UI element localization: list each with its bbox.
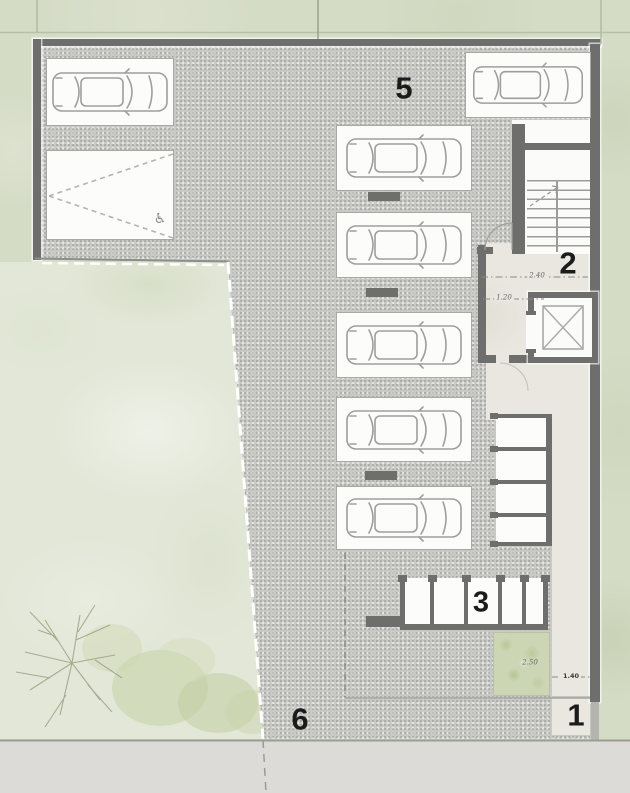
locker-tick — [490, 446, 498, 452]
parking-space — [336, 312, 472, 378]
stair-rail — [556, 180, 558, 252]
zone-label-storage: 3 — [473, 589, 489, 618]
zone-label-entry: 1 — [567, 700, 584, 731]
elevator-door-jamb-bottom — [526, 349, 536, 353]
storage-divider — [522, 578, 526, 630]
locker-tick — [490, 479, 498, 485]
elevator-cab-floor — [534, 298, 592, 357]
elevator-door — [526, 313, 536, 351]
stair-treads — [527, 180, 590, 252]
wall-top — [35, 39, 601, 46]
storage-divider — [430, 578, 434, 630]
parking-space — [465, 52, 591, 118]
dimension-elevator-lobby: 1.20 — [494, 295, 514, 302]
storage-divider — [464, 578, 468, 630]
storage-tick — [496, 575, 505, 582]
zone-label-driveway: 6 — [291, 704, 308, 735]
parking-space — [336, 125, 472, 191]
locker-divider — [496, 542, 546, 546]
wheelchair-icon: ♿ — [154, 211, 167, 227]
zone-label-parking: 5 — [395, 73, 412, 104]
car-top-view — [342, 319, 466, 371]
locker-divider — [496, 513, 546, 517]
wheel-stop — [366, 288, 398, 297]
car-top-view — [342, 132, 466, 184]
car-top-view — [342, 404, 466, 456]
locker-column-wall-right — [546, 414, 552, 546]
parking-space — [336, 486, 472, 550]
entry-gate-wall — [591, 702, 599, 740]
accessible-parking-space: ♿ — [46, 150, 174, 240]
wall-right — [590, 44, 600, 702]
locker-divider — [496, 414, 546, 418]
storage-tick — [462, 575, 471, 582]
elevator-door-jamb-top — [526, 311, 536, 315]
parking-space — [336, 397, 472, 462]
storage-tick — [428, 575, 437, 582]
floor-plan-canvas: ♿ — [0, 0, 630, 793]
sidewalk — [0, 740, 630, 793]
car-top-view — [342, 492, 466, 544]
parking-space — [336, 212, 472, 278]
car-top-view — [342, 219, 466, 271]
locker-divider — [496, 447, 546, 451]
storage-tick — [398, 575, 407, 582]
lobby-wall-left — [478, 245, 486, 363]
locker-tick — [490, 413, 498, 419]
dimension-planter: 2.50 — [522, 660, 538, 667]
stairwell-wall-top — [525, 143, 590, 150]
locker-tick — [490, 512, 498, 518]
wheel-stop — [365, 471, 397, 480]
parking-space — [46, 58, 174, 126]
dimension-walkway: 1.40 — [561, 673, 581, 680]
lobby-door-opening — [496, 355, 509, 363]
wall-left — [33, 39, 41, 260]
car-top-view — [469, 60, 587, 110]
stairwell-wall-left — [512, 124, 525, 254]
storage-wall-stub — [366, 616, 402, 627]
storage-divider — [498, 578, 502, 630]
storage-row-wall-right — [543, 578, 548, 630]
zone-label-stair: 2 — [559, 248, 576, 279]
accessible-space-markings — [47, 151, 175, 241]
wheel-stop — [368, 192, 400, 201]
car-top-view — [48, 66, 172, 118]
storage-tick — [541, 575, 550, 582]
locker-tick — [490, 541, 498, 547]
locker-divider — [496, 480, 546, 484]
dimension-stair-lobby: 2.40 — [527, 273, 547, 280]
storage-tick — [520, 575, 529, 582]
